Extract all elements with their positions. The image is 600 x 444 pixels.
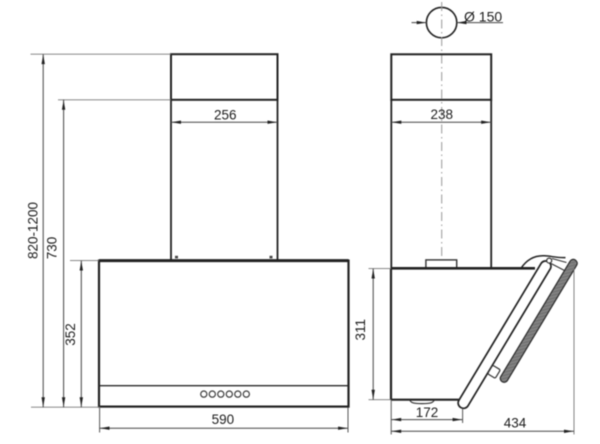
svg-text:311: 311 xyxy=(353,319,368,341)
svg-text:Ø 150: Ø 150 xyxy=(464,9,502,25)
svg-text:352: 352 xyxy=(63,323,78,346)
svg-text:434: 434 xyxy=(504,416,527,431)
svg-text:590: 590 xyxy=(212,412,235,427)
svg-text:730: 730 xyxy=(44,237,59,260)
svg-text:172: 172 xyxy=(416,405,439,420)
svg-text:238: 238 xyxy=(431,107,454,122)
svg-text:256: 256 xyxy=(214,108,237,123)
svg-text:820-1200: 820-1200 xyxy=(25,202,40,259)
